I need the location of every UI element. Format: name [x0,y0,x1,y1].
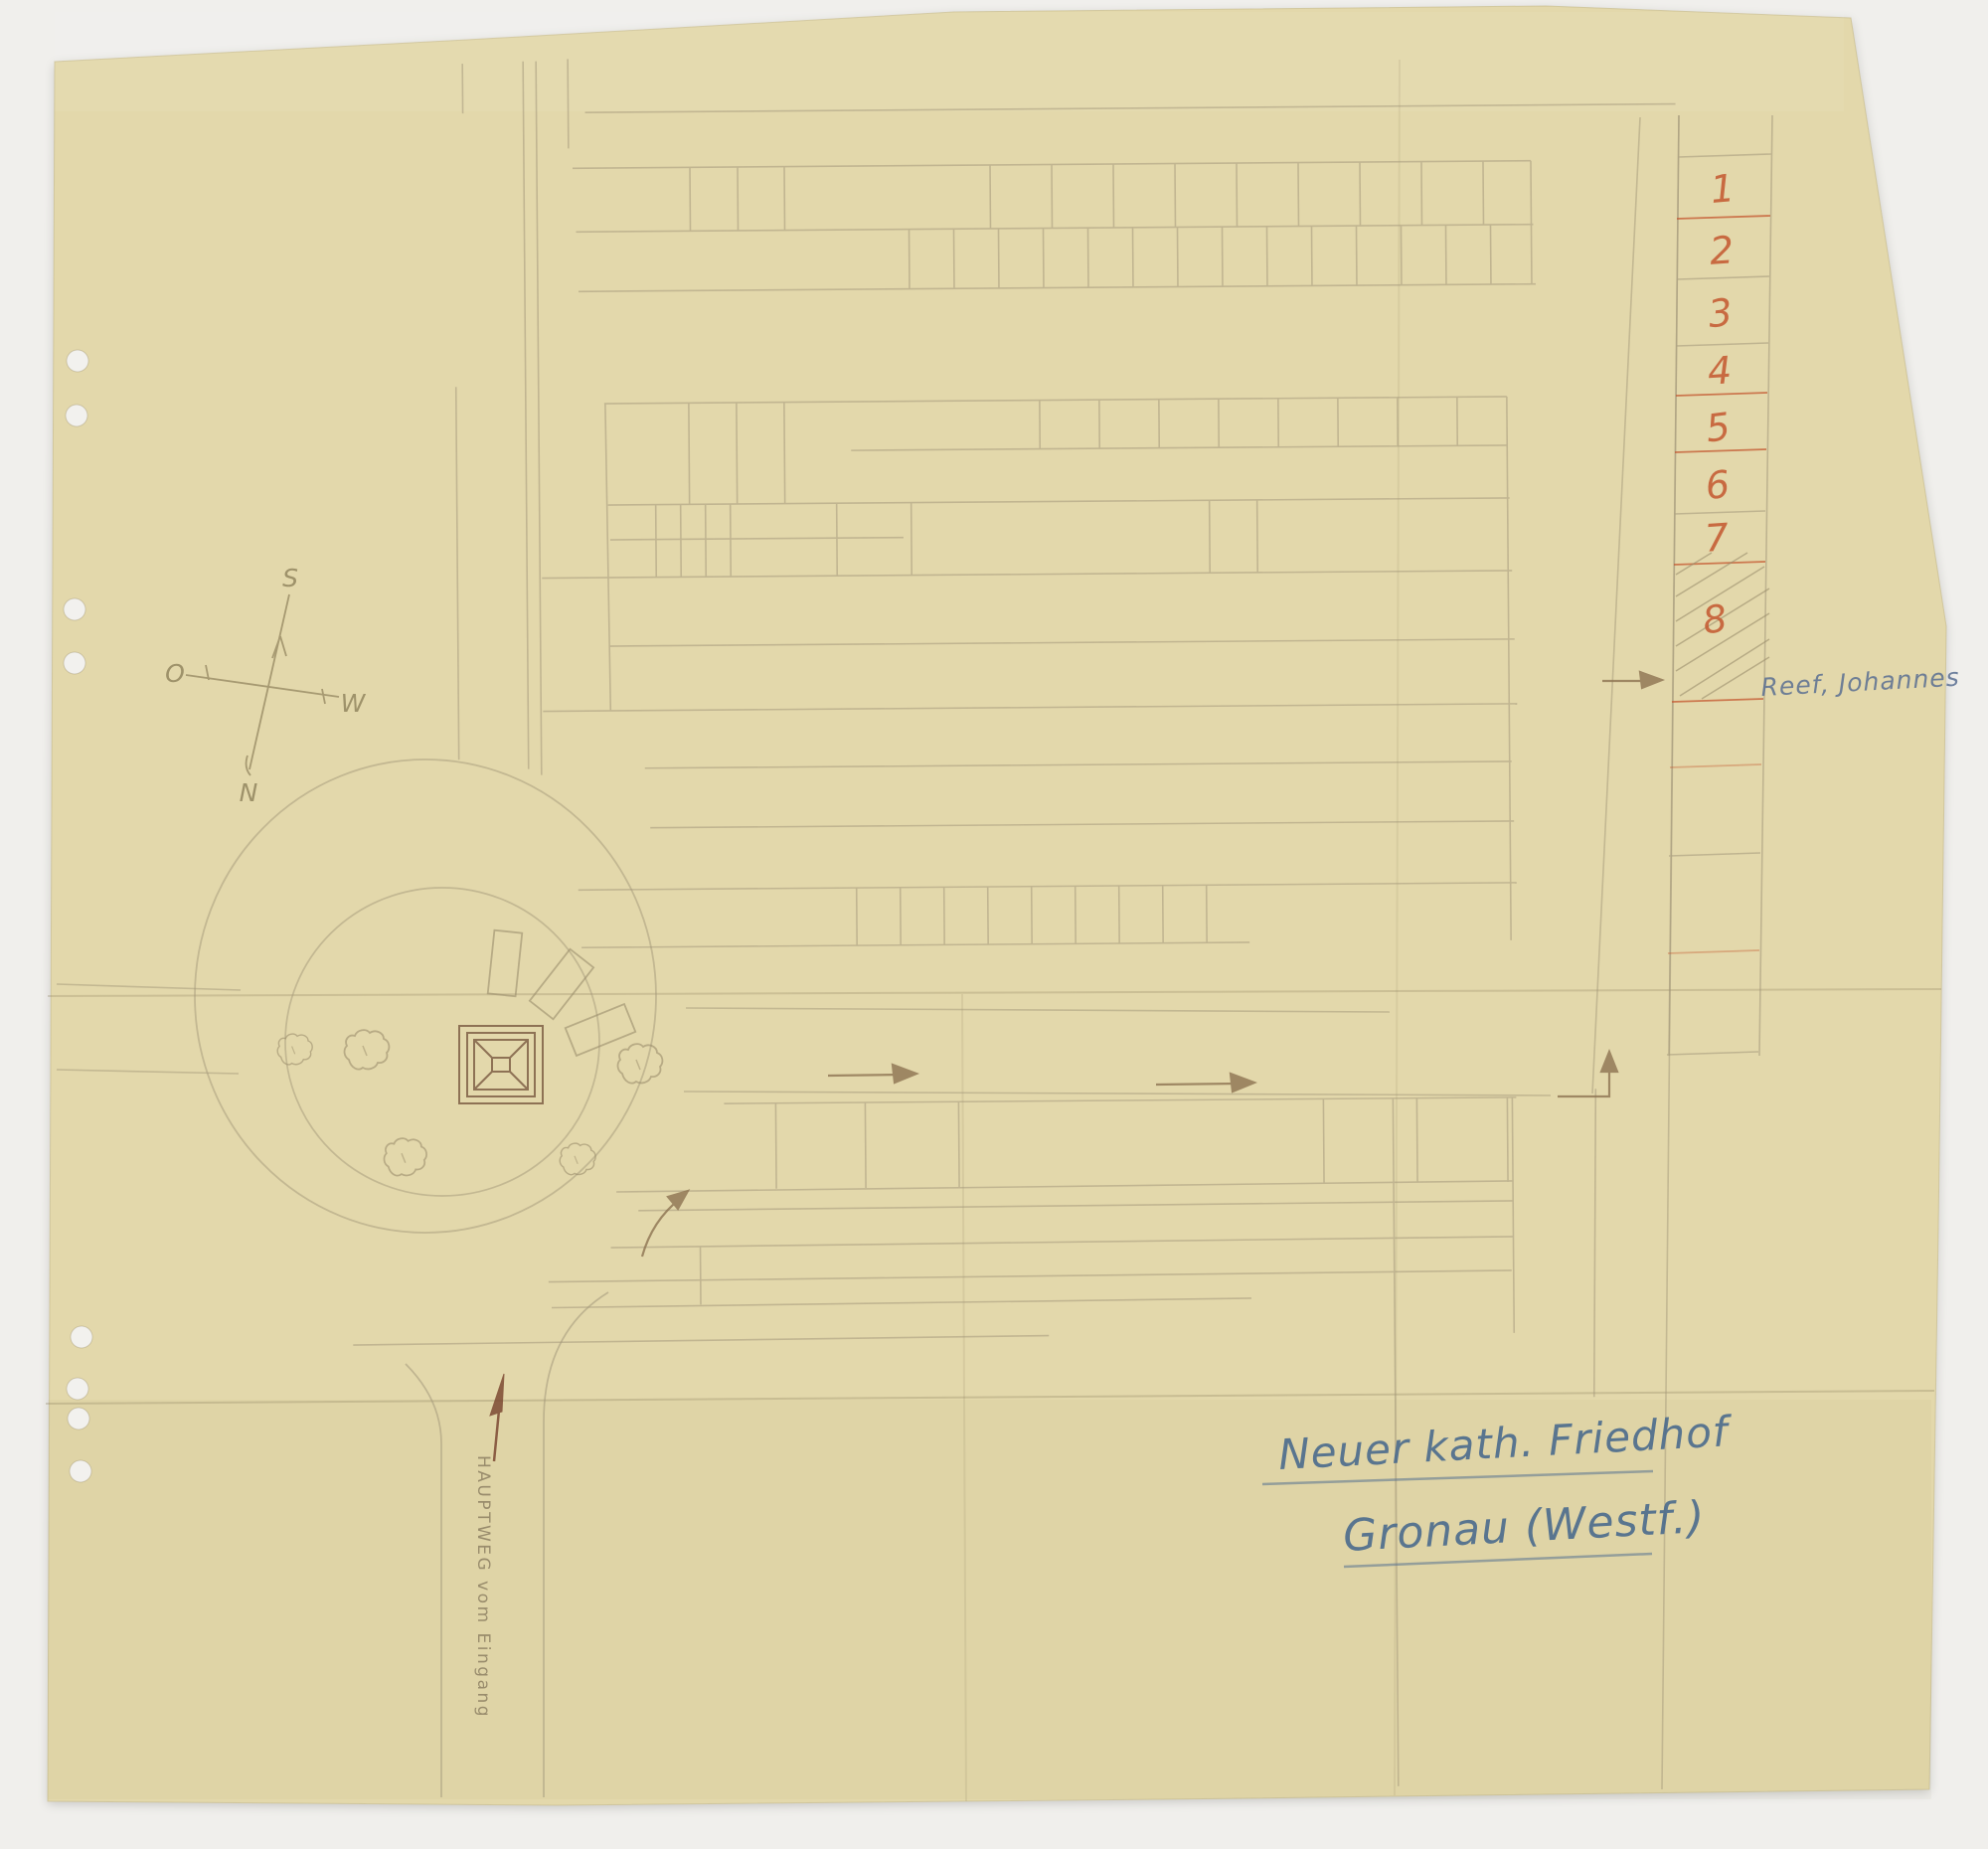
punch-hole [64,652,85,674]
central-arrow-1-shaft [828,1075,901,1076]
punch-hole [71,1326,92,1348]
plot-number-3: 3 [1706,290,1735,336]
plot-number-2: 2 [1708,228,1735,273]
punch-hole [66,405,87,426]
punch-hole [68,1408,89,1429]
compass-north-label: N [240,778,258,807]
compass-south-label: S [282,564,298,592]
plot-number-4: 4 [1706,348,1733,394]
plot-number-1: 1 [1709,166,1737,212]
punch-hole [64,598,85,620]
compass-west-label: W [341,689,367,718]
paper-tone-top [55,12,1844,111]
cemetery-plan-scan: S O W N [0,0,1988,1849]
punch-hole [67,350,88,372]
punch-hole [67,1378,88,1400]
main-path-label: HAUPTWEG vom Eingang [473,1455,493,1719]
punch-hole [70,1460,91,1482]
plan-drawing: S O W N [0,0,1988,1849]
plot-number-7: 7 [1703,515,1730,561]
compass-east-label: O [165,659,185,688]
plot-number-6: 6 [1704,462,1732,508]
central-arrow-2-shaft [1156,1084,1238,1085]
